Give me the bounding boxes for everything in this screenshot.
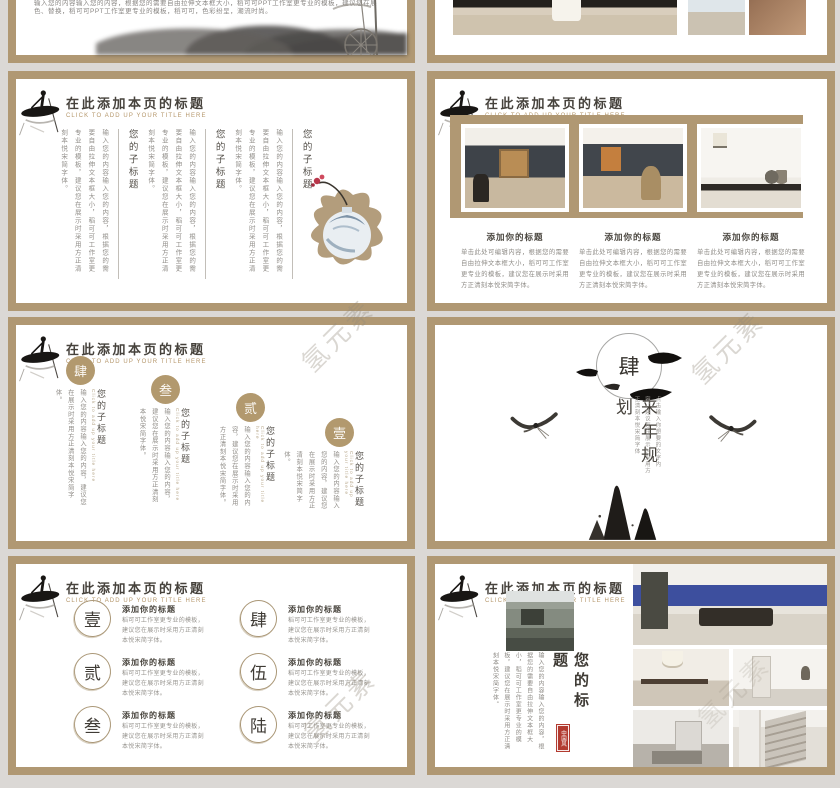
gallery-title-vertical: 您的标题 <box>549 652 591 726</box>
step-text-group: 您的子标题 Click to add up your title here 输入… <box>100 408 192 509</box>
item-heading: 添加你的标题 <box>122 604 208 615</box>
waterwheel-ink-icon <box>331 0 395 55</box>
body-text: 输入您的内容输入您的内容，根据您的需要自由拉伸文本框大小，稻可可工作室更专业的模… <box>56 129 111 279</box>
item-heading: 添加你的标题 <box>288 604 374 615</box>
section-number-circle: 肆 <box>596 333 662 399</box>
interior-photo-dining <box>633 649 729 706</box>
slide-six-items[interactable]: 在此添加本页的标题 CLICK TO ADD UP YOUR TITLE HER… <box>8 556 415 775</box>
step-subtitle-en: Click to add up your title here <box>254 426 264 509</box>
vertical-text-group: 您的子标题 输入您的内容输入您的内容，根据您的需要自由拉伸文本框大小，稻可可工作… <box>143 129 226 279</box>
gallery-body-vertical: 输入您的内容输入您的内容，根据您的需要自由拉伸文本框大小，稻可可工作室更专业的模… <box>493 652 545 754</box>
vertical-text-group: 您的子标题 输入您的内容输入您的内容，根据您的需要自由拉伸文本框大小，稻可可工作… <box>56 129 139 279</box>
body-text: 输入您的内容输入您的内容，根据您的需要自由拉伸文本框大小，稻可可工作室更专业的模… <box>143 129 198 279</box>
caption-heading: 添加你的标题 <box>697 231 805 243</box>
item-body: 稻可可工作室更专业的模板，建议您在展示时采用方正清刻本悦宋简字体。 <box>122 670 208 700</box>
slide-photo-strip[interactable] <box>427 0 835 63</box>
item-body: 稻可可工作室更专业的模板，建议您在展示时采用方正清刻本悦宋简字体。 <box>288 617 374 647</box>
slide-section-divider[interactable]: 肆 来年规划 点击输入你想要的文字内容，建议您在展示时采用方正清刻本悦宋简字体 <box>427 317 835 549</box>
step-heading: 您的子标题 <box>353 451 366 511</box>
step-number-badge: 肆 <box>66 356 95 385</box>
step-text-group: 您的子标题 Click to add up your title here 输入… <box>16 389 108 509</box>
slide-gallery[interactable]: 在此添加本页的标题 CLICK TO ADD UP YOUR TITLE HER… <box>427 556 835 775</box>
interior-photo-window <box>688 0 745 35</box>
caption-heading: 添加你的标题 <box>579 231 687 243</box>
red-seal-stamp: 中国风 <box>556 724 570 752</box>
page-title: 在此添加本页的标题 <box>66 343 207 357</box>
step-body: 输入您的内容输入您的内容，建议您在展示时采用方正清刻本悦宋简字体。 <box>215 426 252 509</box>
item-text: 添加你的标题 稻可可工作室更专业的模板，建议您在展示时采用方正清刻本悦宋简字体。 <box>288 657 374 700</box>
exterior-photo <box>506 591 574 651</box>
interior-photo-console <box>701 128 801 208</box>
crane-icon <box>706 414 758 450</box>
item-text: 添加你的标题 稻可可工作室更专业的模板，建议您在展示时采用方正清刻本悦宋简字体。 <box>288 710 374 753</box>
step-text-group: 您的子标题 Click to add up your title here 输入… <box>274 451 366 511</box>
subheading: 您的子标题 <box>205 129 226 279</box>
item-number-circle: 伍 <box>238 651 279 692</box>
step-body: 输入您的内容输入您的内容，建议您在展示时采用方正清刻本悦宋简字体。 <box>51 389 88 509</box>
item-heading: 添加你的标题 <box>122 657 208 668</box>
slide-intro[interactable]: 输入您的内容输入您的内容，根据您的需要自由拉伸文本框大小，稻可可PPT工作室更专… <box>8 0 415 63</box>
item-number-circle: 肆 <box>238 598 279 639</box>
framed-photo <box>461 124 569 212</box>
caption-block: 添加你的标题 单击此处可编辑内容，根据您的需要自由拉伸文本框大小，稻可可工作室更… <box>697 231 805 291</box>
interior-photo-room <box>633 710 729 767</box>
crane-icon <box>509 411 561 447</box>
item-heading: 添加你的标题 <box>288 657 374 668</box>
item-text: 添加你的标题 稻可可工作室更专业的模板，建议您在展示时采用方正清刻本悦宋简字体。 <box>122 657 208 700</box>
intro-paragraph-line2: 色、替换，稻可可PPT工作室更专业的模板，稻可可，色彩纷呈，潮流时尚。 <box>34 5 377 15</box>
item-number-circle: 陆 <box>238 704 279 745</box>
step-number-badge: 贰 <box>236 393 265 422</box>
boatman-ink-icon <box>437 572 483 630</box>
caption-block: 添加你的标题 单击此处可编辑内容，根据您的需要自由拉伸文本框大小，稻可可工作室更… <box>579 231 687 291</box>
interior-photo-blue-wall <box>633 564 827 645</box>
page-title: 在此添加本页的标题 <box>485 97 626 111</box>
framed-photo <box>697 124 805 212</box>
item-number: 伍 <box>250 659 267 684</box>
subheading: 您的子标题 <box>118 129 139 279</box>
step-number-badge: 壹 <box>325 418 354 447</box>
template-preview-canvas: 输入您的内容输入您的内容，根据您的需要自由拉伸文本框大小，稻可可PPT工作室更专… <box>0 0 840 788</box>
step-subtitle-en: Click to add up your title here <box>343 451 353 511</box>
item-body: 稻可可工作室更专业的模板，建议您在展示时采用方正清刻本悦宋简字体。 <box>122 723 208 753</box>
item-number-circle: 叁 <box>72 704 113 745</box>
ink-mountains-icon <box>587 475 669 541</box>
item-number: 贰 <box>84 659 101 684</box>
page-title: 在此添加本页的标题 <box>66 97 207 111</box>
step-subtitle-en: Click to add up your title here <box>174 408 179 509</box>
caption-body: 单击此处可编辑内容，根据您的需要自由拉伸文本框大小，稻可可工作室更专业的模板，建… <box>461 247 569 291</box>
step-number-badge: 叁 <box>151 375 180 404</box>
caption-heading: 添加你的标题 <box>461 231 569 243</box>
page-title: 在此添加本页的标题 <box>66 582 207 596</box>
page-subtitle: CLICK TO ADD UP YOUR TITLE HERE <box>66 113 207 119</box>
section-note: 点击输入你想要的文字内容，建议您在展示时采用方正清刻本悦宋简字体 <box>631 396 662 476</box>
item-body: 稻可可工作室更专业的模板，建议您在展示时采用方正清刻本悦宋简字体。 <box>288 670 374 700</box>
boatman-ink-icon <box>18 333 64 391</box>
framed-photo <box>579 124 687 212</box>
item-body: 稻可可工作室更专业的模板，建议您在展示时采用方正清刻本悦宋简字体。 <box>122 617 208 647</box>
item-number: 陆 <box>250 712 267 737</box>
step-subtitle-en: Click to add up your title here <box>90 389 95 509</box>
item-number: 叁 <box>84 712 101 737</box>
body-text: 输入您的内容输入您的内容，根据您的需要自由拉伸文本框大小，稻可可工作室更专业的模… <box>230 129 285 279</box>
caption-body: 单击此处可编辑内容，根据您的需要自由拉伸文本框大小，稻可可工作室更专业的模板，建… <box>697 247 805 291</box>
item-number: 肆 <box>250 606 267 631</box>
item-text: 添加你的标题 稻可可工作室更专业的模板，建议您在展示时采用方正清刻本悦宋简字体。 <box>122 604 208 647</box>
interior-photo-lounge <box>583 128 683 208</box>
item-text: 添加你的标题 稻可可工作室更专业的模板，建议您在展示时采用方正清刻本悦宋简字体。 <box>288 604 374 647</box>
item-text: 添加你的标题 稻可可工作室更专业的模板，建议您在展示时采用方正清刻本悦宋简字体。 <box>122 710 208 753</box>
interior-photo-staircase <box>733 710 827 767</box>
item-heading: 添加你的标题 <box>288 710 374 721</box>
interior-photo-desk <box>453 0 677 35</box>
boatman-ink-icon <box>18 572 64 630</box>
item-heading: 添加你的标题 <box>122 710 208 721</box>
step-text-group: 您的子标题 Click to add up your title here 输入… <box>185 426 277 509</box>
caption-body: 单击此处可编辑内容，根据您的需要自由拉伸文本框大小，稻可可工作室更专业的模板，建… <box>579 247 687 291</box>
item-number: 壹 <box>84 606 101 631</box>
slide-three-photos[interactable]: 在此添加本页的标题 CLICK TO ADD UP YOUR TITLE HER… <box>427 71 835 311</box>
caption-block: 添加你的标题 单击此处可编辑内容，根据您的需要自由拉伸文本框大小，稻可可工作室更… <box>461 231 569 291</box>
porcelain-vase-blossom-icon <box>289 167 399 279</box>
step-body: 输入您的内容输入您的内容，建议您在展示时采用方正清刻本悦宋简字体。 <box>280 451 341 511</box>
interior-photo-livingroom <box>465 128 565 208</box>
interior-photo-detail <box>749 0 806 35</box>
slide-vertical-columns[interactable]: 在此添加本页的标题 CLICK TO ADD UP YOUR TITLE HER… <box>8 71 415 311</box>
step-body: 输入您的内容输入您的内容，建议您在展示时采用方正清刻本悦宋简字体。 <box>135 408 172 509</box>
slide-numbered-steps[interactable]: 在此添加本页的标题 CLICK TO ADD UP YOUR TITLE HER… <box>8 317 415 549</box>
item-body: 稻可可工作室更专业的模板，建议您在展示时采用方正清刻本悦宋简字体。 <box>288 723 374 753</box>
item-number-circle: 贰 <box>72 651 113 692</box>
interior-photo-hallway <box>733 649 827 706</box>
section-number: 肆 <box>597 334 661 398</box>
